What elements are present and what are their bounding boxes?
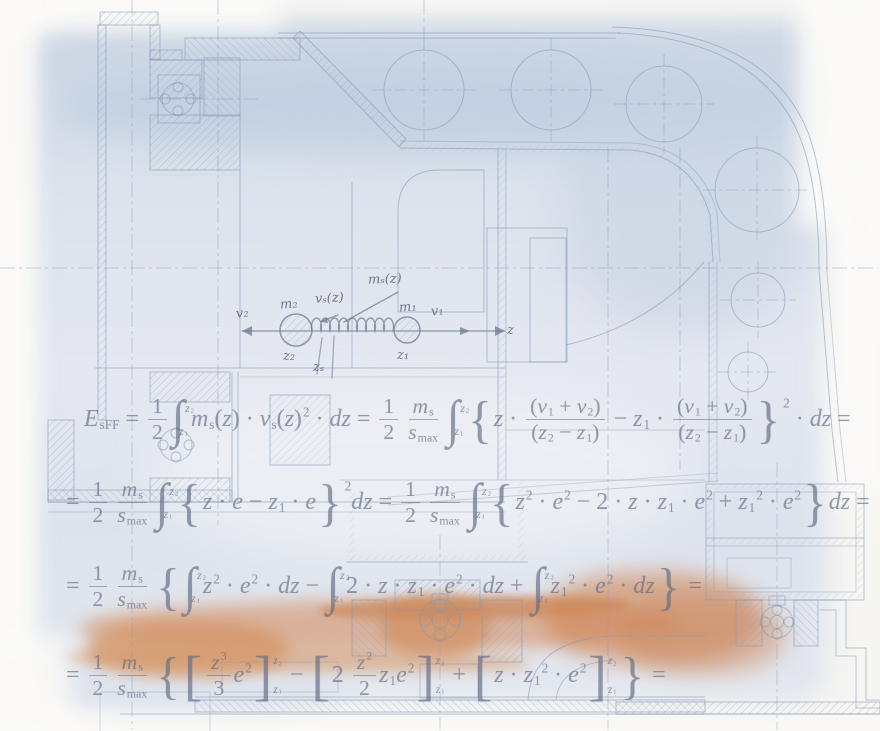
math-token: ): [232, 406, 240, 433]
math-token: s: [138, 660, 143, 674]
orange-patch-right: [545, 572, 760, 664]
math-token: smax: [113, 503, 151, 528]
math-token: 2: [613, 660, 616, 667]
orange-patch-far-right: [620, 598, 785, 674]
math-token: z1: [539, 591, 548, 606]
spring-sketch: [0, 0, 880, 731]
math-token: 2: [401, 503, 420, 528]
math-token: 1: [169, 513, 172, 520]
math-token: ·: [575, 573, 595, 600]
math-token: ∫z2z1: [171, 397, 190, 443]
math-token: 1: [548, 404, 554, 418]
math-token: 12: [401, 477, 420, 529]
math-token: ·: [258, 573, 278, 600]
math-token: e: [783, 489, 794, 516]
paper-edge-bottom: [0, 714, 880, 731]
math-token: ·: [310, 406, 330, 433]
math-token: ms: [118, 561, 147, 587]
math-token: +: [504, 573, 530, 600]
math-token: z: [185, 401, 190, 416]
math-token: ·: [763, 489, 783, 516]
math-token: 1: [279, 500, 286, 516]
math-token: =: [66, 573, 86, 600]
math-token: ∫z2z1: [155, 480, 174, 526]
math-token: 2: [152, 420, 163, 445]
math-token: z: [551, 573, 560, 600]
math-token: −: [554, 420, 577, 445]
math-token: 2: [466, 408, 469, 415]
math-token: ms: [430, 477, 459, 503]
math-token: v: [724, 394, 734, 419]
math-token: z: [436, 655, 440, 667]
math-token: 2: [245, 660, 252, 676]
math-token: dz: [829, 489, 850, 516]
math-token: z: [273, 655, 277, 667]
math-token: mssmax: [113, 650, 151, 702]
label-m2: m₂: [279, 296, 298, 312]
math-token: 1: [544, 597, 547, 604]
math-token: 12: [89, 650, 108, 702]
math-token: 2 z22z1e2: [330, 650, 417, 702]
math-token: 2: [89, 503, 108, 528]
math-token: 2: [93, 587, 104, 612]
math-token: m: [413, 394, 429, 419]
math-token: z: [608, 655, 612, 667]
math-token: ∫z2z1: [183, 564, 202, 610]
math-token: 12: [89, 561, 108, 613]
math-token: dz: [351, 489, 372, 516]
math-token: (z2 − z1): [674, 420, 750, 445]
math-token: 1: [561, 584, 568, 600]
math-token: 2: [706, 488, 713, 504]
math-token: dz: [483, 573, 504, 600]
math-token: ·: [613, 573, 633, 600]
math-token: z2: [460, 401, 469, 416]
math-token: +: [446, 662, 472, 689]
math-token: ): [592, 420, 599, 445]
math-token: }: [620, 650, 644, 702]
math-token: 2: [756, 488, 763, 504]
math-token: z2: [608, 655, 617, 667]
math-token: ∫z2z1: [468, 480, 487, 526]
math-token: ms: [118, 477, 147, 503]
math-token: 2: [89, 676, 108, 701]
math-token: ·: [240, 406, 260, 433]
math-token: z: [379, 662, 388, 689]
math-token: e: [695, 489, 706, 516]
math-token: z: [482, 484, 487, 499]
label-vs: vₛ(z): [315, 290, 344, 306]
math-token: z: [524, 662, 533, 689]
math-token: 2: [441, 660, 444, 667]
math-token: s: [117, 587, 125, 612]
math-token: z2: [197, 568, 206, 583]
math-token: 2: [587, 404, 593, 418]
math-token: smax: [404, 420, 442, 445]
math-token: e: [444, 573, 455, 600]
math-token: z: [197, 568, 202, 583]
math-token: 1: [93, 650, 104, 675]
math-token: 2: [203, 575, 206, 582]
math-token: 3: [209, 676, 228, 701]
math-token: 2: [695, 431, 701, 445]
math-token: mssmax: [404, 394, 442, 446]
math-token: 1: [389, 673, 396, 689]
math-token: z1: [454, 424, 463, 439]
math-token: 2: [366, 649, 372, 663]
math-token: [z · z12 · e2]z2z1: [474, 648, 617, 703]
paper-edge-top-left: [0, 0, 280, 30]
math-token: z: [516, 489, 525, 516]
bottom-right-frame: [616, 484, 880, 714]
orange-patch-center: [380, 595, 490, 657]
math-token: ): [740, 394, 747, 419]
math-token: +: [701, 394, 724, 419]
bottom-center: [100, 580, 706, 731]
math-token: s: [209, 417, 214, 433]
math-token: 2: [93, 676, 104, 701]
math-token: z1: [334, 591, 343, 606]
math-token: v: [537, 394, 547, 419]
math-token: z2z1: [273, 655, 282, 695]
math-token: ·: [790, 406, 810, 433]
math-token: e: [568, 662, 579, 689]
math-token: z1: [476, 507, 485, 522]
math-token: (: [531, 420, 538, 445]
math-token: 1: [441, 689, 444, 696]
math-token: e: [240, 573, 251, 600]
math-token: − 2 ·: [571, 489, 629, 516]
math-token: 2: [734, 404, 740, 418]
math-token: z: [494, 662, 503, 689]
math-token: max: [127, 514, 147, 528]
math-token: z: [608, 684, 612, 696]
math-token: 2: [569, 572, 576, 588]
math-token: z: [285, 406, 294, 433]
math-token: z2z1: [436, 655, 445, 695]
math-token: ·: [650, 406, 670, 433]
math-token: sFF: [100, 417, 120, 433]
math-token: z2: [436, 655, 445, 667]
math-token: 1: [89, 477, 108, 503]
math-token: ·: [212, 489, 232, 516]
math-token: z1: [436, 684, 445, 696]
math-token: e: [396, 662, 407, 689]
math-token: 1: [379, 394, 398, 420]
math-token: dz: [330, 406, 351, 433]
math-token: e: [305, 489, 316, 516]
math-token: 1: [93, 561, 104, 586]
math-token: z: [334, 591, 339, 606]
math-token: −: [701, 420, 724, 445]
math-token: +: [713, 489, 739, 516]
math-token: z33e2: [202, 650, 254, 702]
math-token: =: [831, 406, 857, 433]
math-token: 2: [548, 431, 554, 445]
bolt-circle: [720, 262, 796, 338]
orange-streak-thin: [320, 594, 630, 621]
math-token: (v1 + v2)(z2 − z1): [526, 394, 604, 446]
label-v2: v₂: [235, 305, 250, 322]
math-token: smax: [113, 676, 151, 701]
math-token: ∫z2z1: [531, 564, 550, 610]
math-token: 1: [148, 394, 167, 420]
math-token: z2: [340, 568, 349, 583]
math-token: z: [179, 424, 184, 439]
watercolor-wash-base: [28, 20, 828, 704]
math-token: {: [156, 561, 180, 613]
math-token: =: [351, 406, 377, 433]
math-token: −: [299, 573, 325, 600]
math-token: ·: [424, 573, 444, 600]
math-token: z2z1: [193, 568, 202, 605]
math-token: z: [545, 568, 550, 583]
math-token: 2: [783, 395, 790, 411]
watercolor-wash-top: [60, 60, 820, 150]
math-token: max: [439, 514, 459, 528]
math-token: 12: [148, 394, 167, 446]
math-token: z2: [545, 568, 554, 583]
math-token: 2: [355, 676, 374, 701]
math-token: 2: [383, 420, 394, 445]
math-token: +: [554, 394, 577, 419]
math-token: }: [318, 477, 342, 529]
center-assembly: [340, 150, 718, 562]
math-token: 2: [580, 660, 587, 676]
math-token: 1: [89, 650, 108, 676]
math-token: }: [657, 561, 681, 613]
math-token: z2: [185, 401, 194, 416]
math-token: max: [127, 598, 147, 612]
math-token: 2: [279, 660, 282, 667]
label-m1: m₁: [398, 299, 417, 315]
math-token: ·: [285, 489, 305, 516]
math-token: v: [577, 394, 587, 419]
math-token: z · z12 · e2: [492, 662, 588, 689]
math-token: 2: [456, 572, 463, 588]
math-token: z: [494, 406, 503, 433]
math-token: z: [273, 684, 277, 696]
math-token: s: [429, 404, 434, 418]
math-token: 2: [346, 575, 349, 582]
watercolor-wash-bottom-left: [50, 655, 350, 717]
math-token: 1: [482, 513, 485, 520]
math-token: z: [357, 650, 365, 675]
math-token: (: [277, 406, 285, 433]
math-token: smax: [426, 503, 464, 528]
math-token: ]: [254, 648, 272, 703]
math-token: E: [84, 406, 99, 433]
math-token: [: [311, 648, 329, 703]
math-token: z: [577, 420, 585, 445]
bolt-circle: [614, 54, 714, 154]
math-token: m: [122, 561, 138, 586]
math-token: =: [66, 489, 86, 516]
math-token: z2z1: [181, 401, 190, 438]
math-token: 2: [542, 660, 549, 676]
formula-line-4: = 12mssmax{[z33e2]z2z1 − [2 z22z1e2]z2z1…: [66, 648, 672, 703]
math-token: 1: [418, 584, 425, 600]
math-token: ·: [463, 573, 483, 600]
math-token: z: [539, 420, 547, 445]
math-token: ∫: [468, 480, 481, 526]
math-token: mssmax: [113, 561, 151, 613]
math-token: s: [451, 487, 456, 501]
math-token: z: [268, 489, 277, 516]
paper-edge-top-right: [798, 0, 880, 228]
math-token: z: [539, 591, 544, 606]
math-token: z: [460, 401, 465, 416]
math-token: −: [243, 489, 269, 516]
math-token: 1: [586, 431, 592, 445]
math-token: [z33e2]z2z1: [184, 648, 282, 703]
math-token: z: [163, 507, 168, 522]
label-z2: z₂: [283, 349, 295, 364]
formula-line-2: = 12mssmax∫z2z1{z · e − z1 · e}2dz = 12m…: [66, 477, 876, 529]
label-zs: zₛ: [313, 360, 324, 375]
math-token: z: [203, 489, 212, 516]
left-flange: [48, 12, 505, 512]
math-token: 2: [405, 503, 416, 528]
math-token: ·: [220, 573, 240, 600]
math-token: s: [271, 417, 276, 433]
math-token: z22: [353, 650, 376, 702]
math-token: 1: [695, 404, 701, 418]
math-token: =: [682, 573, 708, 600]
math-token: (v1 + v2): [673, 394, 751, 420]
math-token: 2: [359, 676, 370, 701]
math-token: 2: [93, 503, 104, 528]
math-token: ·: [504, 662, 524, 689]
math-token: (: [678, 420, 685, 445]
math-token: z: [724, 420, 732, 445]
math-token: 2: [795, 488, 802, 504]
top-housing: [278, 27, 846, 482]
label-z-axis: z: [507, 323, 514, 338]
math-token: {: [156, 650, 180, 702]
math-token: ∫: [447, 397, 460, 443]
math-token: 1: [279, 689, 282, 696]
math-token: 1: [185, 430, 188, 437]
math-token: 2: [175, 491, 178, 498]
math-token: z1: [163, 507, 172, 522]
math-token: dz: [633, 573, 654, 600]
formula-line-1: EsFF = 12∫z2z1ms(z) · vs(z)2 · dz = 12ms…: [84, 394, 857, 446]
math-token: =: [66, 662, 86, 689]
math-token: s: [138, 487, 143, 501]
math-token: z2: [482, 484, 491, 499]
watercolor-wash-center-light: [150, 390, 690, 560]
math-token: ∫: [183, 564, 196, 610]
math-token: ·: [532, 489, 552, 516]
paper-edge-bottom-left: [0, 636, 70, 731]
math-token: z: [203, 573, 212, 600]
math-token: 2: [345, 478, 352, 494]
math-token: ·: [387, 573, 407, 600]
math-token: 1: [405, 477, 416, 502]
math-token: ∫: [327, 564, 340, 610]
math-token: z1: [608, 684, 617, 696]
math-token: 1: [643, 417, 650, 433]
math-token: 1: [613, 689, 616, 696]
math-token: z: [685, 420, 693, 445]
math-token: z: [454, 424, 459, 439]
math-token: ): [294, 406, 302, 433]
math-token: 1: [401, 477, 420, 503]
math-token: mssmax: [113, 477, 151, 529]
math-token: z1: [179, 424, 188, 439]
math-token: 2: [332, 662, 350, 689]
math-token: z: [340, 568, 345, 583]
math-token: dz: [810, 406, 831, 433]
math-token: max: [418, 431, 438, 445]
paper-edge-right: [830, 170, 880, 500]
math-token: }: [757, 394, 781, 446]
math-token: z: [628, 489, 637, 516]
watercolor-wash-right: [560, 70, 810, 330]
math-token: }: [803, 477, 827, 529]
math-token: 2: [550, 575, 553, 582]
math-token: [: [184, 648, 202, 703]
math-token: z: [222, 406, 231, 433]
math-token: 2: [488, 491, 491, 498]
math-token: s: [430, 503, 438, 528]
math-token: z: [169, 484, 174, 499]
bolt-circle: [499, 38, 603, 142]
math-token: z1: [273, 684, 282, 696]
math-token: {: [177, 477, 201, 529]
math-token: ·: [548, 662, 568, 689]
engineering-drawing: [0, 0, 880, 731]
math-token: z: [191, 591, 196, 606]
math-token: z1: [191, 591, 200, 606]
math-token: 2: [148, 420, 167, 445]
math-token: ·: [503, 406, 523, 433]
math-token: z2: [169, 484, 178, 499]
math-token: e: [234, 662, 245, 689]
math-token: ∫z2z1: [446, 397, 465, 443]
math-token: z: [378, 573, 387, 600]
math-token: {: [490, 477, 514, 529]
math-token: ]: [416, 648, 434, 703]
math-token: 3: [221, 649, 227, 663]
math-token: 3: [213, 676, 224, 701]
math-token: ∫: [156, 480, 169, 526]
math-token: 2: [252, 572, 259, 588]
math-token: 2: [564, 488, 571, 504]
math-token: s: [117, 503, 125, 528]
math-token: (: [214, 406, 222, 433]
math-token: 1: [668, 500, 675, 516]
math-token: (z2 − z1): [527, 420, 603, 445]
math-token: z3: [207, 650, 230, 676]
math-token: 1: [749, 500, 756, 516]
math-token: z2: [273, 655, 282, 667]
math-token: [2 z22z1e2]z2z1: [311, 648, 444, 703]
math-token: 1: [89, 561, 108, 587]
math-token: 2: [191, 408, 194, 415]
paper-edge-left: [0, 0, 36, 731]
math-token: dz: [278, 573, 299, 600]
math-token: z2z1: [336, 568, 345, 605]
math-token: ms: [409, 394, 438, 420]
artwork-canvas: v₂ m₂ vₛ(z) mₛ(z) m₁ v₁ z₂ zₛ z₁ z EsFF …: [0, 0, 880, 731]
math-token: {: [468, 394, 492, 446]
math-token: =: [119, 406, 145, 433]
math-token: max: [127, 686, 147, 700]
math-token: v: [260, 406, 271, 433]
label-v1: v₁: [430, 303, 444, 319]
